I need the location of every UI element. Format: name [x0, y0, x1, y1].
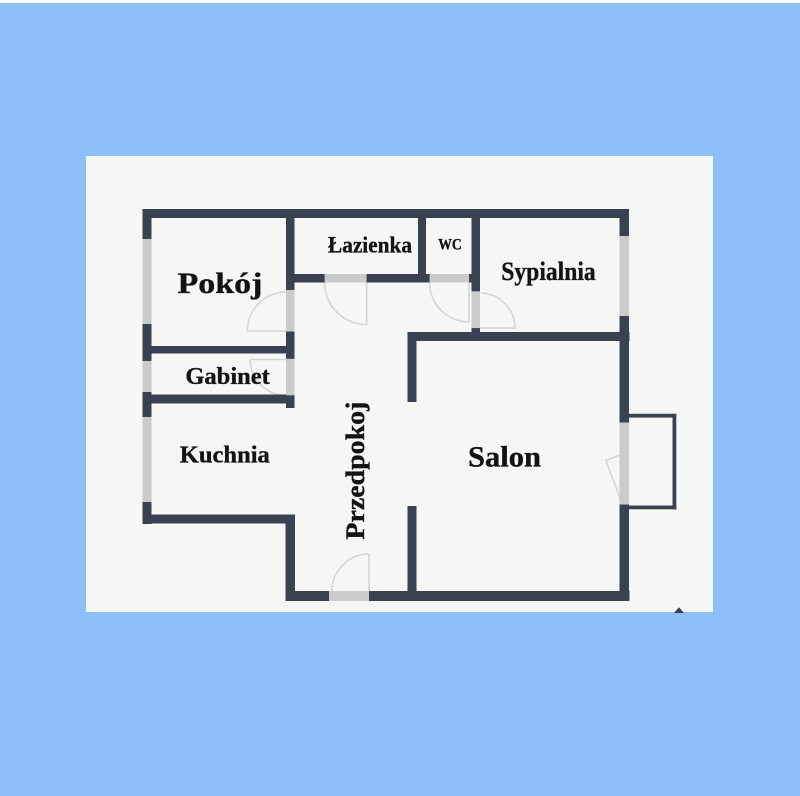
svg-text:Przedpokoj: Przedpokoj: [341, 402, 370, 540]
svg-text:Pokój: Pokój: [178, 267, 263, 300]
svg-text:Sypialnia: Sypialnia: [501, 257, 596, 286]
svg-text:Kuchnia: Kuchnia: [180, 443, 270, 469]
svg-text:Salon: Salon: [468, 441, 541, 474]
svg-text:WC: WC: [438, 237, 462, 254]
svg-text:Gabinet: Gabinet: [185, 364, 270, 390]
svg-text:Łazienka: Łazienka: [328, 232, 412, 257]
